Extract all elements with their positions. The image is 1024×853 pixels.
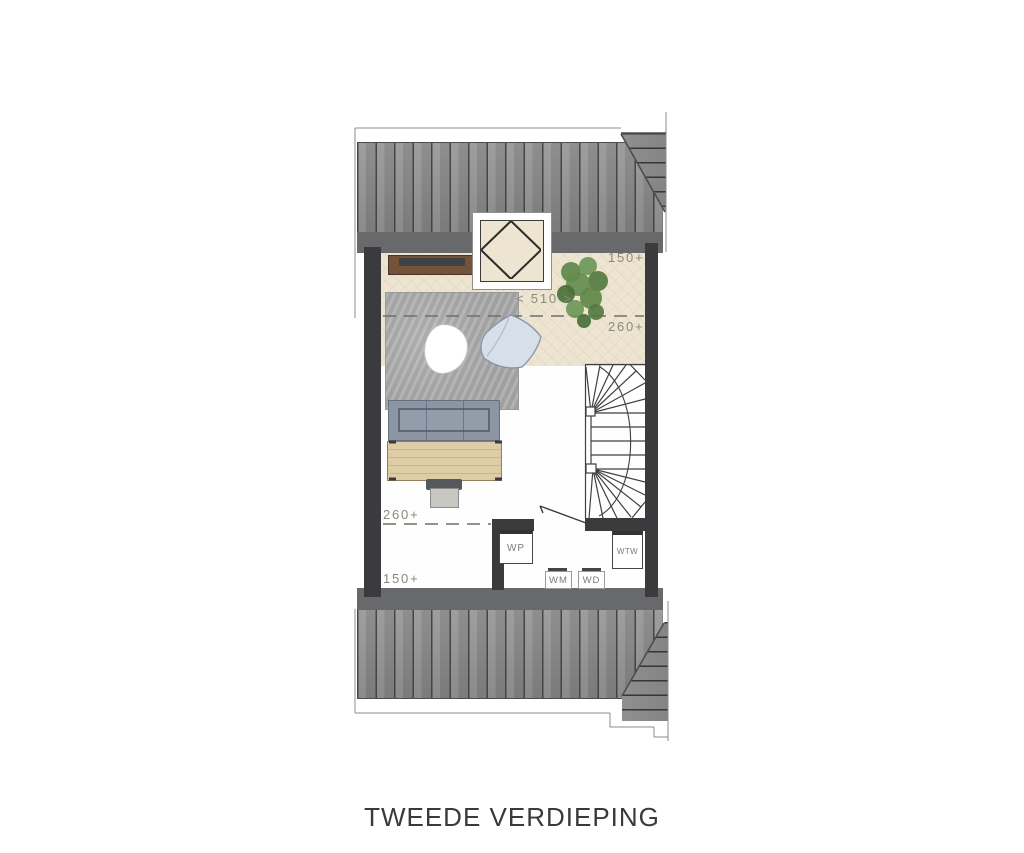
dimension-label-upper-260: 260+ (608, 319, 644, 334)
stair-bottom-wall (585, 518, 645, 531)
right-wall (645, 243, 658, 597)
tv (399, 258, 465, 266)
floor-plan-canvas: WP WTW WM WD (0, 0, 1024, 853)
heat-recovery-box: WTW (612, 531, 643, 569)
skylight-window (472, 212, 552, 290)
sofa-cushion-divider (426, 401, 427, 440)
floor-title: TWEEDE VERDIEPING (0, 802, 1024, 833)
skylight-diamond-icon (481, 221, 541, 279)
sofa-seat (398, 408, 490, 432)
washing-machine-box: WM (545, 571, 572, 589)
dimension-label-lower-260: 260+ (383, 507, 419, 522)
heat-recovery-label: WTW (617, 547, 638, 556)
heat-pump-box: WP (499, 530, 533, 564)
dryer-label: WD (583, 575, 601, 586)
sofa (388, 400, 500, 441)
heat-pump-label: WP (507, 543, 525, 554)
washing-machine-label: WM (549, 575, 568, 586)
dimension-label-width-510: < 510 > (516, 291, 573, 306)
sofa-cushion-divider (463, 401, 464, 440)
left-wall (364, 247, 381, 597)
bottom-eave-band (357, 588, 663, 610)
chair-seat (430, 488, 459, 508)
dryer-box: WD (578, 571, 605, 589)
bottom-roof (357, 610, 663, 699)
dimension-label-top-150: 150+ (608, 250, 644, 265)
skylight-glass (480, 220, 544, 282)
dimension-label-bottom-150: 150+ (383, 571, 419, 586)
table (387, 441, 502, 481)
